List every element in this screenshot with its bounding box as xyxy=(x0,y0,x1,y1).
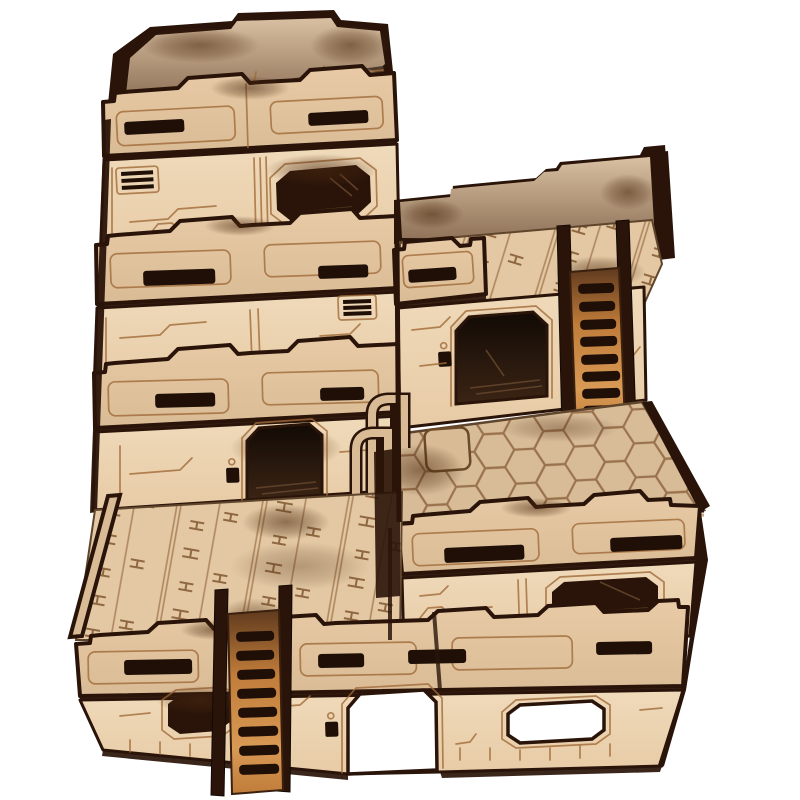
photo-canvas xyxy=(0,0,800,800)
window-slit xyxy=(124,659,192,675)
scorch-mark xyxy=(266,154,378,186)
ladder-rung-slot xyxy=(580,336,617,347)
ladder-rung-slot xyxy=(239,764,279,775)
ladder-rung-slot xyxy=(238,726,278,737)
scorch-mark xyxy=(242,504,330,540)
block-seam xyxy=(397,244,399,522)
window-slit xyxy=(320,387,364,401)
ladder-rung-slot xyxy=(582,388,620,399)
ladder-rung-slot xyxy=(237,669,275,680)
scorch-mark xyxy=(310,25,390,65)
terrace-corner-recess xyxy=(374,448,400,598)
window-slit xyxy=(318,653,364,668)
window-slit xyxy=(318,264,368,279)
ladder-rung-slot xyxy=(579,301,615,312)
scorch-mark xyxy=(400,199,464,229)
scorch-mark xyxy=(210,76,290,100)
scorch-mark xyxy=(140,27,260,63)
ladder-rung-slot xyxy=(236,631,274,642)
upper-tier xyxy=(394,145,675,431)
terrain-building-photo xyxy=(0,0,800,800)
ladder-rung-slot xyxy=(237,688,276,699)
tier-front-parapet xyxy=(394,238,486,304)
ladder-rung-slot xyxy=(578,283,614,294)
ladder-rung-slot xyxy=(236,650,274,661)
scorch-mark xyxy=(600,174,656,210)
ladder-ground-left xyxy=(211,585,292,796)
ground-wall xyxy=(80,684,683,780)
window-slit xyxy=(155,392,215,408)
window-slit xyxy=(143,268,215,286)
window-slit xyxy=(596,641,652,655)
ground-doorway-cutout xyxy=(348,690,437,774)
scorch-mark xyxy=(500,498,572,518)
ladder-rung-slot xyxy=(580,319,616,330)
scorch-mark xyxy=(204,216,276,236)
scorch-mark xyxy=(230,542,370,590)
ladder-rung-slot xyxy=(239,745,279,756)
ladder-rung-slot xyxy=(582,371,620,382)
scorch-mark xyxy=(500,414,620,442)
ladder-rung-slot xyxy=(238,707,277,718)
ladder-rung-slot xyxy=(581,354,618,365)
